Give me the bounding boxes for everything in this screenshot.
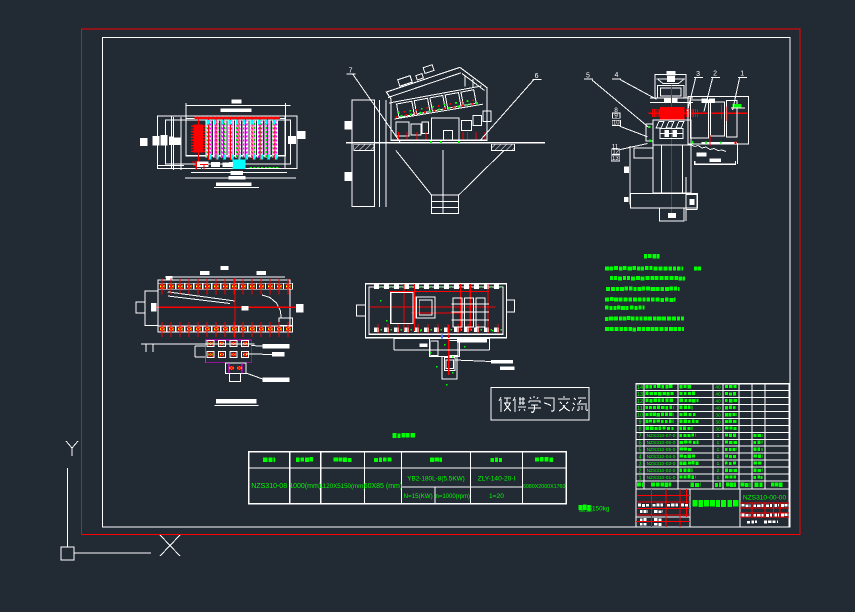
svg-text:1: 1 [717,447,720,453]
svg-text:6: 6 [638,441,641,447]
svg-text:n=1000(rpm): n=1000(rpm) [435,494,470,500]
svg-text:1: 1 [717,461,720,467]
svg-text:NZS310-05-0: NZS310-05-0 [647,447,676,453]
svg-text:2: 2 [717,468,720,474]
svg-text:9: 9 [614,112,618,119]
svg-text:ZLY-140-20-I: ZLY-140-20-I [478,476,516,483]
svg-text:40: 40 [715,391,721,397]
svg-text:9: 9 [638,420,641,426]
svg-text:13: 13 [637,392,643,398]
svg-text:3: 3 [638,461,641,467]
svg-text:NZS310-04-0: NZS310-04-0 [647,454,676,460]
svg-text:4: 4 [614,72,618,79]
svg-text:40: 40 [715,385,721,391]
svg-text:30: 30 [715,426,721,432]
svg-text:NZS310-01-0: NZS310-01-0 [647,475,676,481]
svg-text:NZS310-06-0: NZS310-06-0 [647,440,676,446]
svg-text:1: 1 [717,475,720,481]
svg-text:60X85 (mm): 60X85 (mm) [364,483,403,490]
svg-text:5: 5 [638,448,641,454]
svg-text:2: 2 [713,71,717,78]
svg-text:1: 1 [717,433,720,439]
svg-text:1: 1 [638,475,641,481]
svg-text:7: 7 [349,68,353,75]
svg-text:150kg: 150kg [592,506,610,513]
svg-text:12: 12 [637,399,643,405]
svg-text:30: 30 [715,412,721,418]
svg-text:11: 11 [637,406,643,412]
svg-text:2: 2 [638,468,641,474]
svg-text:NZS310-00-00: NZS310-00-00 [743,495,787,502]
svg-text:4: 4 [638,455,641,461]
svg-text:6080X2000X1760: 6080X2000X1760 [523,484,565,490]
svg-text:40: 40 [715,398,721,404]
svg-text:12: 12 [612,150,619,156]
svg-text:1: 1 [740,71,744,78]
svg-text:40: 40 [715,405,721,411]
svg-text:1000(mm): 1000(mm) [289,483,321,490]
svg-text:1: 1 [717,440,720,446]
svg-text:5: 5 [586,73,590,80]
svg-text:14: 14 [637,385,643,391]
svg-text:NZS310-08: NZS310-08 [251,483,287,490]
svg-text:8: 8 [638,427,641,433]
svg-text:7: 7 [638,434,641,440]
svg-text:NZS310-03-0: NZS310-03-0 [647,461,676,467]
svg-text:3: 3 [696,71,700,78]
svg-text:1: 1 [717,454,720,460]
svg-text:13: 13 [612,156,619,162]
svg-text:YB2-180L-8(5.5KW): YB2-180L-8(5.5KW) [407,476,465,483]
svg-text:30: 30 [715,419,721,425]
svg-text:1=20: 1=20 [489,493,504,500]
svg-text:NZS310-02-0: NZS310-02-0 [647,468,676,474]
svg-text:NZS310-07-0: NZS310-07-0 [647,433,676,439]
svg-text:1120X5150(mm): 1120X5150(mm) [320,483,366,490]
svg-text:N=15(KW): N=15(KW) [404,493,433,500]
svg-text:10: 10 [613,121,620,127]
svg-text:10: 10 [637,413,643,419]
